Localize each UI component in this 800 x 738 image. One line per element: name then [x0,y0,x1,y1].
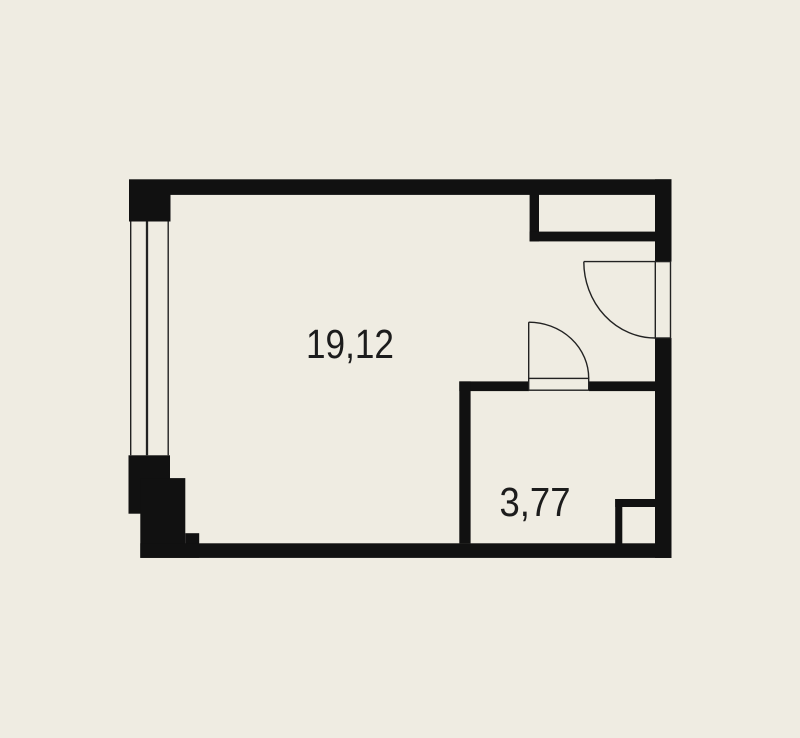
svg-text:19,12: 19,12 [306,321,394,367]
svg-text:3,77: 3,77 [500,479,571,525]
